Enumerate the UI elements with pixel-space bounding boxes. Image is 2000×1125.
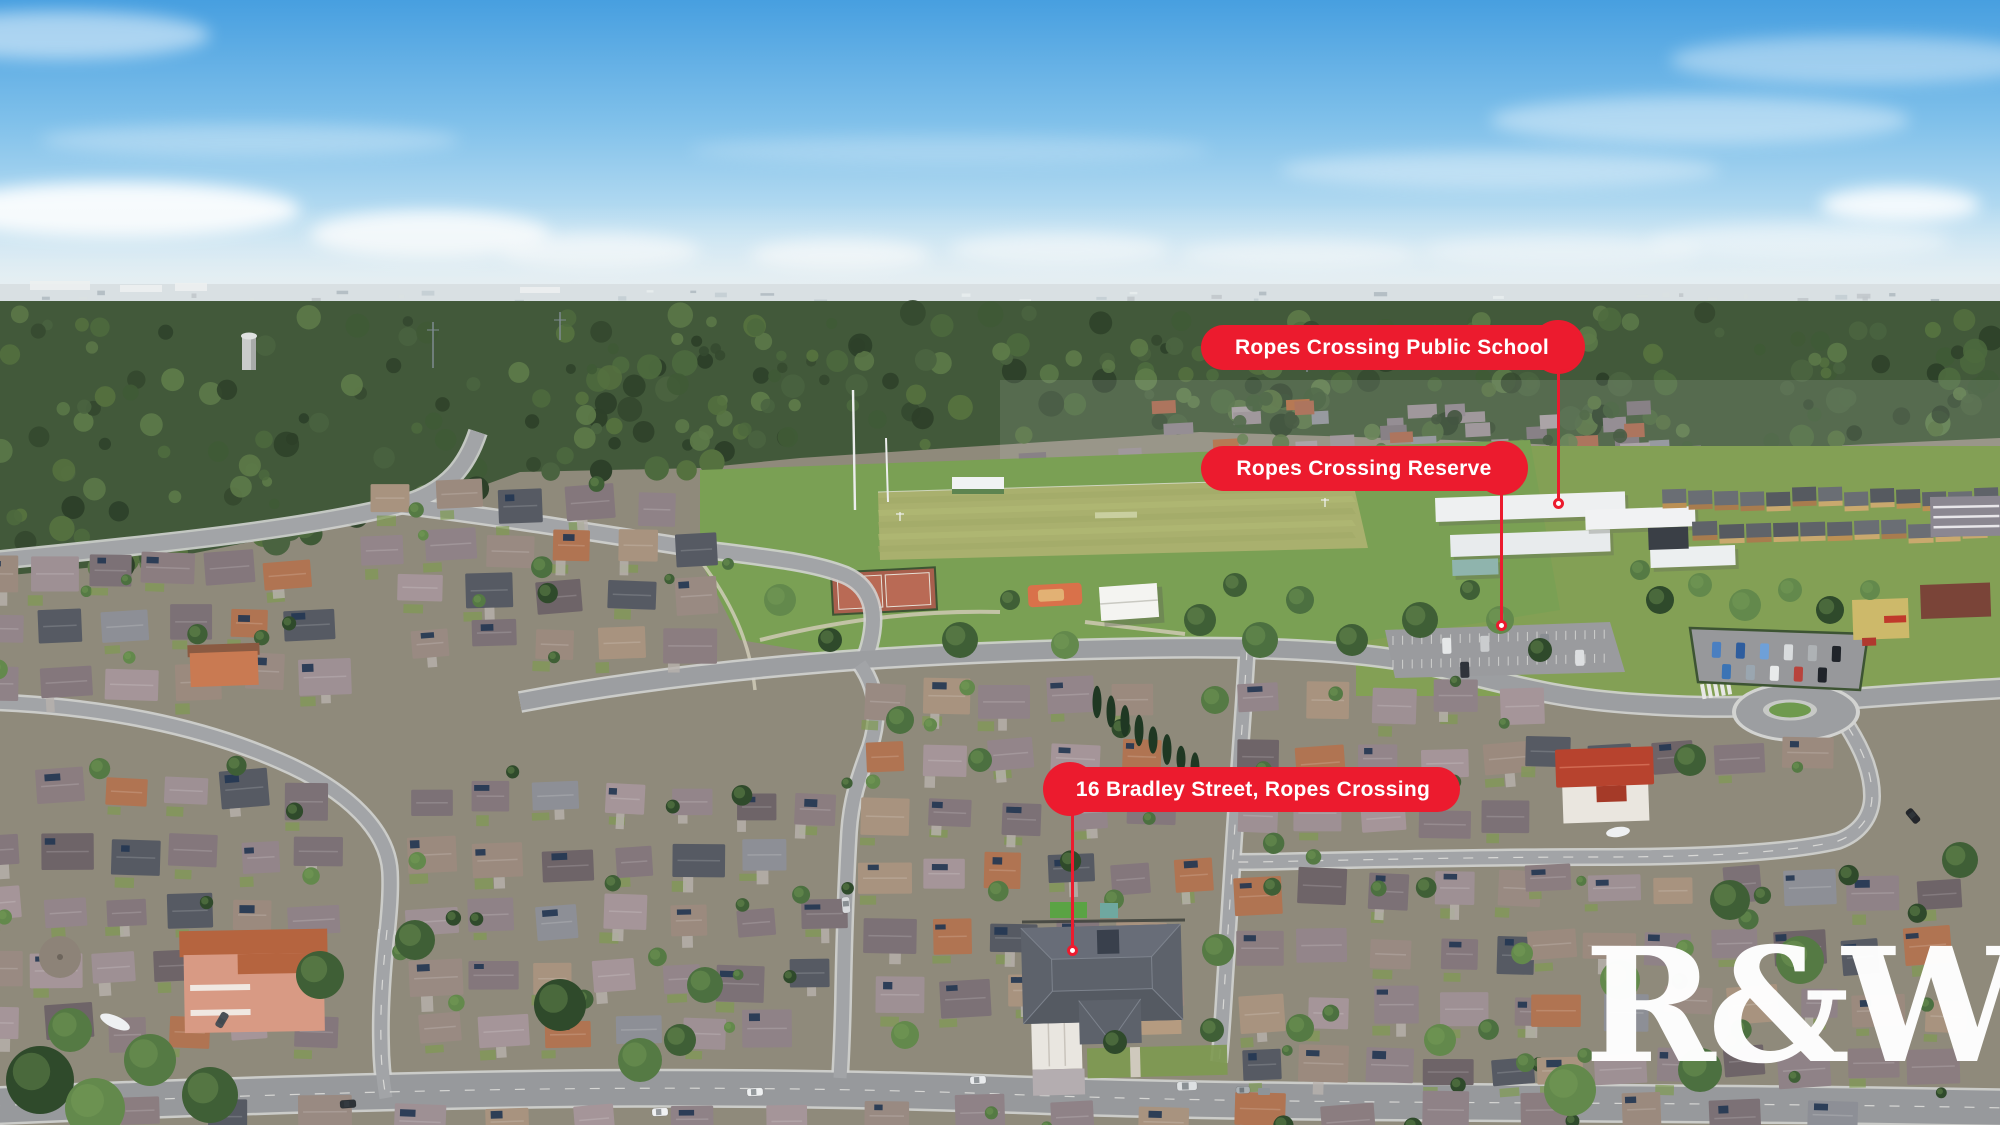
callout-label: Ropes Crossing Public School <box>1201 325 1583 370</box>
map-pin-dot <box>1067 945 1078 956</box>
aerial-property-photo: Ropes Crossing Public School Ropes Cross… <box>0 0 2000 1125</box>
map-pin-dot <box>1553 498 1564 509</box>
map-pin-dot <box>1496 620 1507 631</box>
callout-label: Ropes Crossing Reserve <box>1201 446 1527 491</box>
agency-watermark-logo: R&W <box>1584 928 2000 1086</box>
callout-label: 16 Bradley Street, Ropes Crossing <box>1046 767 1460 812</box>
